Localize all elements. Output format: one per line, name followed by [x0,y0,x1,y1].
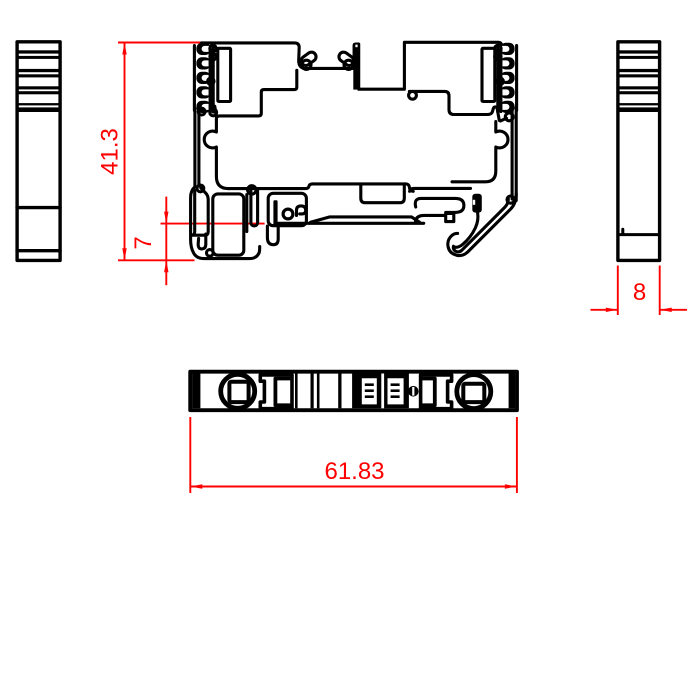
svg-text:41.3: 41.3 [97,128,124,175]
svg-text:7: 7 [130,236,157,249]
svg-text:8: 8 [633,279,646,306]
svg-text:61.83: 61.83 [324,458,384,485]
